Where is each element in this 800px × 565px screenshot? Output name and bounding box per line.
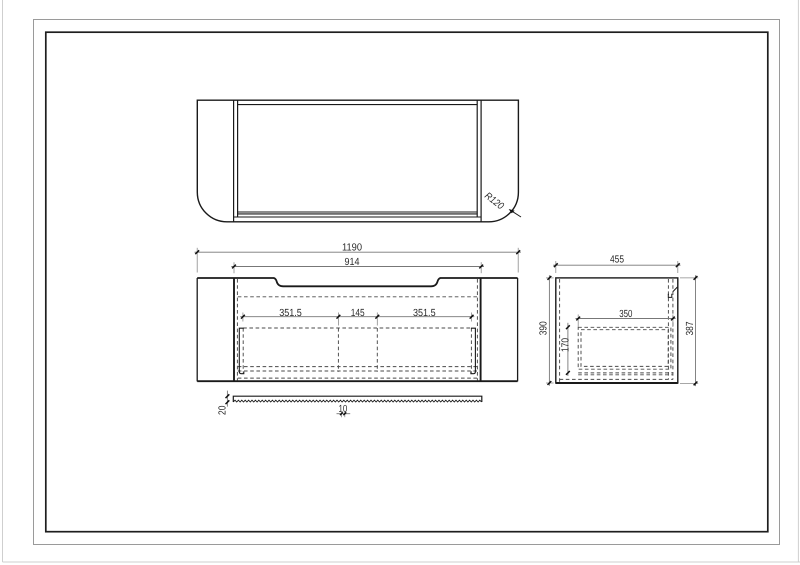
svg-text:351.5: 351.5 xyxy=(413,308,436,319)
svg-text:390: 390 xyxy=(539,321,550,335)
svg-text:145: 145 xyxy=(351,308,365,319)
svg-text:455: 455 xyxy=(610,255,624,266)
svg-text:387: 387 xyxy=(685,321,696,335)
svg-text:350: 350 xyxy=(619,309,632,320)
svg-text:20: 20 xyxy=(217,405,228,415)
svg-text:351.5: 351.5 xyxy=(279,308,302,319)
svg-text:170: 170 xyxy=(560,338,571,352)
svg-text:1190: 1190 xyxy=(342,243,362,254)
svg-text:914: 914 xyxy=(345,257,360,268)
